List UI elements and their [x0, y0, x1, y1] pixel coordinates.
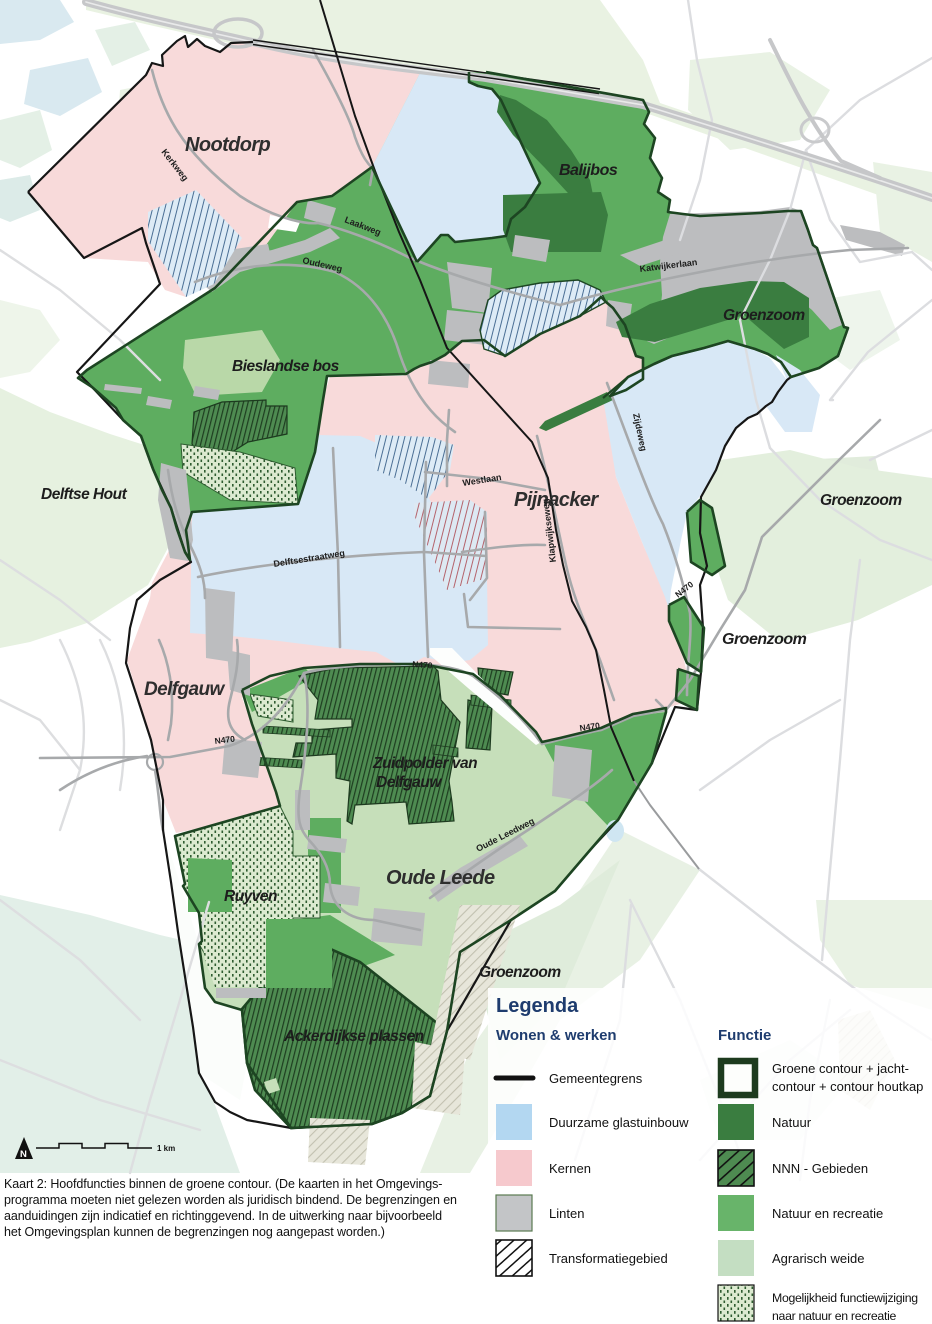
svg-text:Delftse Hout: Delftse Hout [41, 486, 128, 503]
svg-text:Balijbos: Balijbos [559, 162, 618, 179]
svg-text:Natuur en recreatie: Natuur en recreatie [772, 1206, 883, 1221]
svg-text:Kernen: Kernen [549, 1161, 591, 1176]
svg-text:contour + contour houtkap: contour + contour houtkap [772, 1079, 923, 1094]
svg-text:Mogelijkheid functiewijziging: Mogelijkheid functiewijziging [772, 1291, 918, 1305]
svg-text:naar natuur en recreatie: naar natuur en recreatie [772, 1309, 897, 1323]
svg-text:Bieslandse bos: Bieslandse bos [232, 358, 340, 375]
svg-text:1 km: 1 km [157, 1144, 175, 1153]
svg-text:Delfgauw: Delfgauw [376, 774, 442, 791]
svg-text:Groenzoom: Groenzoom [723, 307, 805, 324]
svg-text:Pijnacker: Pijnacker [514, 489, 599, 511]
svg-text:Functie: Functie [718, 1027, 771, 1044]
svg-text:Wonen & werken: Wonen & werken [496, 1027, 617, 1044]
svg-text:Groenzoom: Groenzoom [820, 492, 902, 509]
svg-text:Transformatiegebied: Transformatiegebied [549, 1251, 668, 1266]
svg-text:Agrarisch weide: Agrarisch weide [772, 1251, 865, 1266]
svg-text:Gemeentegrens: Gemeentegrens [549, 1071, 643, 1086]
svg-text:Groenzoom: Groenzoom [479, 964, 561, 981]
svg-text:Delfgauw: Delfgauw [144, 679, 225, 700]
svg-text:Ackerdijkse plassen: Ackerdijkse plassen [283, 1028, 424, 1045]
svg-text:Groene contour + jacht-: Groene contour + jacht- [772, 1061, 909, 1076]
svg-text:N: N [20, 1149, 27, 1160]
svg-text:Legenda: Legenda [496, 995, 579, 1017]
svg-text:NNN - Gebieden: NNN - Gebieden [772, 1161, 868, 1176]
svg-text:Oude Leede: Oude Leede [386, 867, 495, 889]
svg-text:Duurzame glastuinbouw: Duurzame glastuinbouw [549, 1115, 689, 1130]
svg-text:Zuidpolder van: Zuidpolder van [372, 755, 477, 772]
svg-text:N470: N470 [412, 659, 433, 670]
svg-text:Groenzoom: Groenzoom [722, 631, 807, 648]
svg-text:Nootdorp: Nootdorp [185, 134, 271, 156]
svg-text:Ruyven: Ruyven [224, 888, 277, 905]
svg-text:Natuur: Natuur [772, 1115, 812, 1130]
